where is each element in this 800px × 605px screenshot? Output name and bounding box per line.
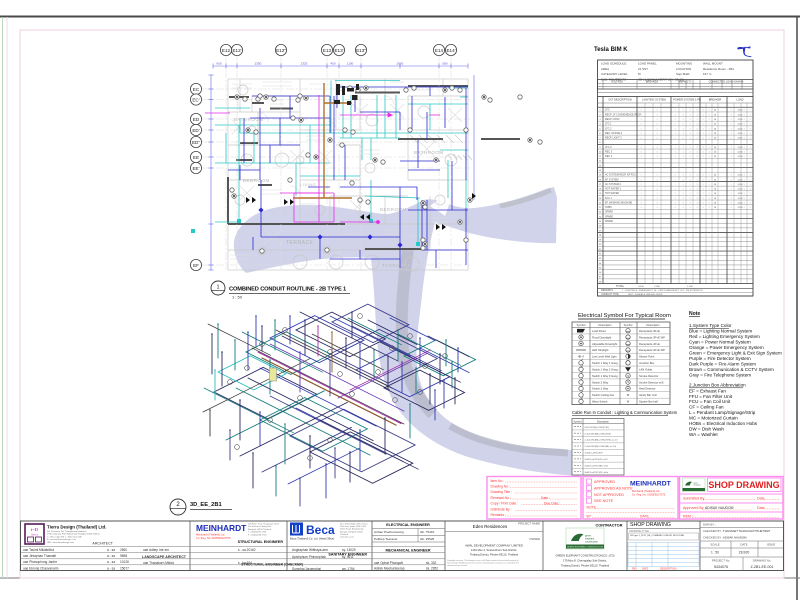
svg-text:Receptacle 2P+E WP: Receptacle 2P+E WP <box>639 348 665 352</box>
svg-text:AMPACITY: AMPACITY <box>678 80 691 84</box>
svg-text:LIVING: LIVING <box>300 182 316 187</box>
svg-text:Apichphum Phiromphak: Apichphum Phiromphak <box>292 555 326 559</box>
svg-text:Beca: Beca <box>306 523 335 537</box>
svg-text:Green = Emergency Light & Exit: Green = Emergency Light & Exit Sign Syst… <box>689 351 782 356</box>
svg-text:Copy / Print Date :: Copy / Print Date : <box>491 502 519 506</box>
svg-text:E12': E12' <box>232 48 241 53</box>
svg-text:Soi Tha-neun Tor, Thungkarang: Soi Tha-neun Tor, Thungkarang Sathorn, <box>47 530 87 533</box>
svg-text:s - sa 20162: s - sa 20162 <box>238 548 256 552</box>
svg-text:2x2.5 SC(W)+2.5SC(T.E7): 2x2.5 SC(W)+2.5SC(T.E7) <box>585 427 610 429</box>
svg-text:1,200: 1,200 <box>737 114 743 116</box>
svg-text:Renewal No :: Renewal No : <box>491 496 511 500</box>
svg-text:Eden Residences: Eden Residences <box>473 524 508 529</box>
svg-text:Smoke Detector w/S: Smoke Detector w/S <box>639 380 664 384</box>
svg-text:WALL MOUNT: WALL MOUNT <box>703 62 723 66</box>
svg-text:1x2x0.5+uPVC,E75: 1x2x0.5+uPVC,E75 <box>585 453 604 455</box>
svg-text:LTG 3: LTG 3 <box>605 146 612 149</box>
svg-text:Co. Reg. No. 0105536127675: Co. Reg. No. 0105536127675 <box>632 493 666 496</box>
svg-text:600: 600 <box>216 62 221 66</box>
svg-text:a - sa: a - sa <box>107 554 115 558</box>
svg-text:108 Floor Tical, Thanpayan Tow: 108 Floor Tical, Thanpayan Tower <box>248 523 280 526</box>
svg-text:Receptacle 2P+E: Receptacle 2P+E <box>639 342 660 346</box>
svg-text:Remarks :: Remarks : <box>491 513 507 517</box>
svg-text:2600: 2600 <box>397 62 404 66</box>
svg-text:PROJECT NAME: PROJECT NAME <box>518 522 540 526</box>
svg-text:LTG 2: LTG 2 <box>605 127 612 130</box>
svg-text:Receptacle 3P+E: Receptacle 3P+E <box>639 329 660 333</box>
svg-text:AC SYSTEM 2: AC SYSTEM 2 <box>605 183 621 186</box>
svg-text:PROJECT No.: PROJECT No. <box>712 559 730 563</box>
svg-text:5434076: 5434076 <box>714 565 728 569</box>
svg-text:ADISAK NAUDOM: ADISAK NAUDOM <box>723 536 747 540</box>
svg-text:SPARE: SPARE <box>605 220 613 223</box>
svg-text:EF: EF <box>193 263 199 268</box>
svg-text:Co. Reg. No. 0105536127675: Co. Reg. No. 0105536127675 <box>196 536 231 540</box>
svg-text:Soi Sukhumvit Bang Rak: Soi Sukhumvit Bang Rak <box>248 525 272 528</box>
svg-text:SHOP DRAWING: SHOP DRAWING <box>630 522 671 528</box>
svg-text:Polthep Teeranet: Polthep Teeranet <box>374 537 397 541</box>
svg-text:CHECKED BY :: CHECKED BY : <box>703 529 723 533</box>
svg-text:uae Phanuphong Janthr: uae Phanuphong Janthr <box>23 560 58 564</box>
svg-text:BREAKER: BREAKER <box>646 80 659 84</box>
svg-text:a - sa: a - sa <box>107 548 115 552</box>
svg-text:1.System Type Color: 1.System Type Color <box>689 323 732 328</box>
svg-text:Silom Road, Bangrakong,: Silom Road, Bangrakong, <box>340 528 364 531</box>
svg-text:DWN BY :: DWN BY : <box>703 523 716 527</box>
svg-text:GREEN ELEPHANT CONSTRUCTION(CO: GREEN ELEPHANT CONSTRUCTION(CO.,LTD) <box>555 554 614 558</box>
svg-text:1,200: 1,200 <box>737 151 743 153</box>
svg-text:APPROVED: APPROVED <box>594 480 615 484</box>
svg-text:t~D: t~D <box>31 527 39 532</box>
svg-text:wy. 1754: wy. 1754 <box>342 567 355 571</box>
svg-text:1,500: 1,500 <box>687 286 693 288</box>
svg-text:14th floor, Room 1401-1403: 14th floor, Room 1401-1403 <box>340 525 367 528</box>
svg-text:THANASET THANACHOTITHETIRAT: THANASET THANACHOTITHETIRAT <box>723 529 771 533</box>
svg-text:No 2 Silom Edge Office Tower: No 2 Silom Edge Office Tower <box>340 523 368 526</box>
svg-text:2325: 2325 <box>301 62 308 66</box>
svg-text:URL: www.tierradesign.com: URL: www.tierradesign.com <box>47 541 74 544</box>
svg-text:Red = Lighting Emergency Syste: Red = Lighting Emergency System <box>689 334 760 339</box>
svg-text:1 : 50: 1 : 50 <box>232 295 243 300</box>
svg-text:Tierra Design (Thailand) Ltd.: Tierra Design (Thailand) Ltd. <box>47 525 106 530</box>
svg-text:Symbol: Symbol <box>577 323 586 327</box>
svg-text:E: aua.tna@tierradesign - Ltd: E: aua.tna@tierradesign - Ltd <box>47 538 76 541</box>
svg-text:LTG: LTG <box>605 109 610 112</box>
svg-text:uae Aditep Intr-em: uae Aditep Intr-em <box>143 548 169 552</box>
svg-text:LOAD: LOAD <box>736 98 743 102</box>
svg-text:elephant: elephant <box>694 484 701 487</box>
svg-text:Dark Purple = Fire Alarm Syste: Dark Purple = Fire Alarm System <box>689 361 756 366</box>
svg-text:Angkaphan Witthaya-arm: Angkaphan Witthaya-arm <box>292 548 328 552</box>
svg-text:LOAD SCHEDULE: LOAD SCHEDULE <box>601 62 626 66</box>
svg-text:TOTAL: TOTAL <box>616 284 625 288</box>
svg-text:CKT DESCRIPTION: CKT DESCRIPTION <box>608 98 632 102</box>
svg-text:ED: ED <box>193 117 200 122</box>
svg-text:REC 4: REC 4 <box>605 155 613 158</box>
svg-text:LIGHTING SYSTEM: LIGHTING SYSTEM <box>642 98 666 102</box>
svg-text:Sqm.BuiR: Sqm.BuiR <box>676 72 690 76</box>
svg-text:HOBS: HOBS <box>605 206 612 209</box>
svg-text:Switch 1 Way 2 Gang: Switch 1 Way 2 Gang <box>592 367 618 371</box>
svg-text:Electrical Symbol For Typical: Electrical Symbol For Typical Room <box>578 313 671 319</box>
svg-text:580: 580 <box>442 62 447 66</box>
svg-text:2560: 2560 <box>120 548 127 552</box>
svg-text:2x4/2.5+uPVC,E15, w1.5: 2x4/2.5+uPVC,E15, w1.5 <box>585 459 609 461</box>
svg-text:Flood Downlight: Flood Downlight <box>592 335 612 339</box>
svg-text:EC': EC' <box>192 97 199 102</box>
svg-text:tierra: tierra <box>31 533 39 537</box>
svg-text:CHECKED BY :: CHECKED BY : <box>703 536 723 540</box>
svg-text:HOBs = Electrical Induction Ho: HOBs = Electrical Induction Hobs <box>689 421 758 426</box>
svg-text:RECP. 1F CONVENIENCE RECP.: RECP. 1F CONVENIENCE RECP. <box>605 113 642 116</box>
svg-text:FCU 1: FCU 1 <box>605 197 613 200</box>
svg-text:POWER SYSTEM 1-PH: POWER SYSTEM 1-PH <box>673 98 701 102</box>
svg-text:DATE: DATE <box>640 515 650 519</box>
svg-text:Square Bar half: Square Bar half <box>639 400 658 404</box>
svg-text:CONTRACTOR: CONTRACTOR <box>596 524 623 528</box>
svg-text:1,200: 1,200 <box>737 110 743 112</box>
svg-text:DATE: DATE <box>740 543 747 547</box>
svg-text:E13": E13" <box>356 48 366 53</box>
svg-text:23/3/20: 23/3/20 <box>739 551 750 555</box>
svg-text:sfk. 25526: sfk. 25526 <box>420 537 435 541</box>
svg-text:Gray = Fire Telephone System: Gray = Fire Telephone System <box>689 372 751 377</box>
svg-text:Orange = Power Emergency Syste: Orange = Power Emergency System <box>689 345 764 350</box>
svg-text:LTG 1: LTG 1 <box>605 123 612 126</box>
svg-text:MEINHARDT: MEINHARDT <box>196 523 247 533</box>
svg-text:LOAD PANEL: LOAD PANEL <box>638 62 657 66</box>
svg-text:commencement of work.: commencement of work. <box>447 564 468 567</box>
svg-text:1,200: 1,200 <box>737 119 743 121</box>
svg-text:1,200: 1,200 <box>737 156 743 158</box>
svg-text:LOCATION: LOCATION <box>676 67 691 71</box>
svg-text:EF = Exhaust Fan: EF = Exhaust Fan <box>689 388 726 393</box>
svg-text:2,330: 2,330 <box>654 286 660 288</box>
svg-text:1,200: 1,200 <box>737 207 743 209</box>
svg-text:E12: E12 <box>222 48 231 53</box>
svg-text:FCU = Fan Coil Unit: FCU = Fan Coil Unit <box>689 399 731 404</box>
svg-text:Description: Description <box>599 323 613 327</box>
svg-text:RECP. CONV.: RECP. CONV. <box>605 118 620 121</box>
svg-text:Beca (Thailand) Co. Ltd. (Head: Beca (Thailand) Co. Ltd. (Head Office) <box>290 537 334 541</box>
svg-text:NOT APPROVED: NOT APPROVED <box>594 493 624 497</box>
svg-text:Note: Note <box>689 311 700 317</box>
svg-text:ED': ED' <box>192 128 199 133</box>
svg-text:Residence Room - 2B1: Residence Room - 2B1 <box>703 67 734 71</box>
svg-text:Cyan = Power Normal System: Cyan = Power Normal System <box>689 340 751 345</box>
svg-text:GREEN ELEPHANT CONSTRUCTION: GREEN ELEPHANT CONSTRUCTION <box>567 546 604 549</box>
svg-text:DESCRIPTION: DESCRIPTION <box>660 568 677 571</box>
svg-text:1,200: 1,200 <box>737 184 743 186</box>
svg-text:Cable Run In Conduit : Lightin: Cable Run In Conduit : Lighting & Commun… <box>572 410 678 415</box>
svg-text:Thalang District, Phuket 83110: Thalang District, Phuket 83110, Thailand <box>470 553 519 557</box>
svg-text:CONNECTED LOAD (VA/KW): CONNECTED LOAD (VA/KW) <box>709 80 744 84</box>
svg-text:Adjustable Downlight: Adjustable Downlight <box>592 342 617 346</box>
svg-text:10126: 10126 <box>120 560 129 564</box>
svg-text:uae Taviml Mikiatrtikul: uae Taviml Mikiatrtikul <box>23 548 54 552</box>
svg-text:DRAWING No.: DRAWING No. <box>753 559 772 563</box>
svg-text:9898: 9898 <box>120 554 127 558</box>
svg-text:Shaver Point: Shaver Point <box>639 355 655 359</box>
svg-text:27/32 Jalan-Dr.Path Pakanong T: 27/32 Jalan-Dr.Path Pakanong Thungkat 10… <box>47 533 100 536</box>
svg-text:T: +66(0)2236-7733: T: +66(0)2236-7733 <box>248 532 267 534</box>
svg-text:MC = Motorized Curtain: MC = Motorized Curtain <box>689 416 738 421</box>
svg-text:uae Thanakorn Mikiat: uae Thanakorn Mikiat <box>143 561 174 565</box>
svg-text:ISSUE: ISSUE <box>767 543 776 547</box>
svg-text:a - sa: a - sa <box>107 560 115 564</box>
svg-text:STRUCTURAL ENGINEER: STRUCTURAL ENGINEER <box>238 540 284 544</box>
svg-text:construction: construction <box>585 541 599 544</box>
svg-text:E14: E14 <box>435 48 444 53</box>
svg-text:DATE: DATE <box>642 568 649 571</box>
svg-text:2+2x2.5SC(W)+2.5SC(SE, w+1.5): 2+2x2.5SC(W)+2.5SC(SE, w+1.5) <box>585 446 617 448</box>
svg-text:AREA: AREA <box>601 67 609 71</box>
svg-text:SHOP DRAWING: SHOP DRAWING <box>708 480 779 490</box>
svg-text:2+2x2.5SC(W)+2.5SC(T.E5): 2+2x2.5SC(W)+2.5SC(T.E5) <box>585 433 612 435</box>
svg-text:CONDUIT TYPE: CONDUIT TYPE <box>601 293 619 296</box>
svg-text:Switch 2 Way: Switch 2 Way <box>592 387 609 391</box>
svg-text:ED": ED" <box>192 140 200 145</box>
svg-text:15677: 15677 <box>120 566 129 570</box>
svg-text:Bangkok 10500 Thailand: Bangkok 10500 Thailand <box>248 529 272 531</box>
svg-text:SEE NOTE: SEE NOTE <box>594 499 614 503</box>
svg-text:sk. 332: sk. 332 <box>426 561 437 565</box>
svg-text:Description: Description <box>597 420 610 423</box>
svg-text:SCALE: SCALE <box>710 543 719 547</box>
svg-text:RECP. LIGHT 2: RECP. LIGHT 2 <box>605 137 622 140</box>
svg-text:Due Date :: Due Date : <box>544 502 560 506</box>
svg-text:1,200: 1,200 <box>737 124 743 126</box>
svg-text:1,200: 1,200 <box>737 193 743 195</box>
svg-text:BREAKER: BREAKER <box>709 98 722 102</box>
svg-text:HOT WATER 1: HOT WATER 1 <box>605 188 622 191</box>
svg-text:2B Type 1_21ST_EE_COMBINE COND: 2B Type 1_21ST_EE_COMBINE CONDUIT ROUTLI… <box>630 535 685 537</box>
svg-text:Item No :: Item No : <box>491 479 505 483</box>
svg-text:VOLTAGE: VOLTAGE <box>611 80 623 84</box>
svg-text:APPROVED AS NOTE: APPROVED AS NOTE <box>594 486 633 490</box>
svg-text:DW = Dish Wash: DW = Dish Wash <box>689 426 724 431</box>
svg-text:sfk. 75410: sfk. 75410 <box>420 530 435 534</box>
svg-text:Meinhardt (Thailand) Ltd.: Meinhardt (Thailand) Ltd. <box>196 533 225 537</box>
svg-text:Switch Ceiling Fan: Switch Ceiling Fan <box>592 393 615 397</box>
svg-text:⊕⊣: ⊕⊣ <box>578 355 584 359</box>
svg-text:3D_EE_2B1: 3D_EE_2B1 <box>190 502 222 508</box>
svg-text:Purple = Fire Detector System: Purple = Fire Detector System <box>689 356 751 361</box>
svg-text:1,200: 1,200 <box>737 189 743 191</box>
svg-text:Receptacle 3P+E WP: Receptacle 3P+E WP <box>639 335 665 339</box>
svg-text:L = Pendant Lamp/Signage/Strip: L = Pendant Lamp/Signage/Strip <box>689 410 756 415</box>
svg-text:2+2x2.5SC(W)+2.5SC(T.E5), w+1.: 2+2x2.5SC(W)+2.5SC(T.E5), w+1.5 <box>585 440 619 442</box>
svg-text:uae Jintaphan Thanakit: uae Jintaphan Thanakit <box>23 554 56 558</box>
svg-text:AWAL DEVELOPMENT COMPANY LIMIT: AWAL DEVELOPMENT COMPANY LIMITED <box>465 544 523 548</box>
svg-text:LAN Outlet: LAN Outlet <box>639 367 652 371</box>
svg-text:BEDROOM: BEDROOM <box>243 178 270 183</box>
svg-text:ADISAK NAUDOM: ADISAK NAUDOM <box>705 506 734 510</box>
svg-text:TERRACE: TERRACE <box>286 240 314 246</box>
svg-text:Somchai Jaroenchai: Somchai Jaroenchai <box>292 567 321 571</box>
svg-text:Smoke Detector: Smoke Detector <box>639 374 658 378</box>
svg-text:Low Level Wall Light: Low Level Wall Light <box>592 355 617 359</box>
svg-text:Switch 1 Way 1 Gang: Switch 1 Way 1 Gang <box>592 361 618 365</box>
svg-text:www.beca.com: www.beca.com <box>340 537 354 539</box>
svg-text:Symbol: Symbol <box>624 323 633 327</box>
svg-text:E13': E13' <box>334 48 343 53</box>
svg-text:MECHANICAL ENGINEER: MECHANICAL ENGINEER <box>385 549 430 553</box>
svg-text:COMBINED CONDUIT ROUTLINE - 2B: COMBINED CONDUIT ROUTLINE - 2B TYPE 1 <box>229 287 346 293</box>
svg-text:1 : 50: 1 : 50 <box>711 551 719 555</box>
svg-text:EF. WASHING MACHINE: EF. WASHING MACHINE <box>605 201 633 204</box>
svg-text:Blue = Lighting Normal System: Blue = Lighting Normal System <box>689 329 752 334</box>
svg-text:REC. OFFICE 2: REC. OFFICE 2 <box>605 132 623 135</box>
svg-text:1100: 1100 <box>347 62 354 66</box>
svg-text:HOT WATER: HOT WATER <box>605 192 619 195</box>
svg-text:BY: BY <box>587 515 592 519</box>
svg-text:TERRACE: TERRACE <box>382 263 407 268</box>
svg-text:1,200: 1,200 <box>737 175 743 177</box>
svg-text:Date: Date <box>757 497 765 501</box>
svg-text:EE: EE <box>193 155 199 160</box>
svg-text:EC: EC <box>193 87 200 92</box>
svg-text:2.Junction Box Abbreviation: 2.Junction Box Abbreviation <box>689 383 746 388</box>
svg-text:UNIT : SURFACE LINE BILL BUSS: UNIT : SURFACE LINE BILL BUSS <box>628 293 663 296</box>
svg-text:CF = Ceiling Fan: CF = Ceiling Fan <box>689 405 724 410</box>
svg-text:L : LIGHTING E : EMERGENCY: L : LIGHTING E : EMERGENCY GL : FIRST EM… <box>622 290 703 292</box>
svg-text:WA = Washlet: WA = Washlet <box>689 432 718 437</box>
svg-text:MEINHARDT: MEINHARDT <box>630 481 672 488</box>
svg-text:Description: Description <box>647 323 661 327</box>
svg-text:1,200: 1,200 <box>737 138 743 140</box>
svg-text:S: S <box>627 374 629 378</box>
svg-text:2x4/2.5+uPVC,SE5, w/2x: 2x4/2.5+uPVC,SE5, w/2x <box>585 465 609 467</box>
svg-text:EF SYSTEM: EF SYSTEM <box>605 178 619 181</box>
svg-text:21 SST: 21 SST <box>638 67 648 71</box>
svg-text:Load Panel: Load Panel <box>592 329 606 333</box>
svg-text:EE': EE' <box>192 166 199 171</box>
svg-text:LANDSCAPE ARCHITECT: LANDSCAPE ARCHITECT <box>142 555 187 559</box>
svg-text:167 m: 167 m <box>703 72 712 76</box>
svg-text:4,100: 4,100 <box>638 286 644 288</box>
svg-text:1,200: 1,200 <box>737 133 743 135</box>
svg-text:Switch 1 Way 3 Gang: Switch 1 Way 3 Gang <box>592 374 618 378</box>
svg-text:MOUNTING: MOUNTING <box>676 62 693 66</box>
svg-text:Junction Box: Junction Box <box>639 361 655 365</box>
svg-text:1: 1 <box>216 285 219 291</box>
svg-text:1491 Moo 4, Srisoonthorn Sub-D: 1491 Moo 4, Srisoonthorn Sub-District, <box>471 548 518 552</box>
svg-text:LED Striplight: LED Striplight <box>592 348 609 352</box>
svg-text:REMARKS: REMARKS <box>601 289 613 292</box>
svg-text:Drawing Title :: Drawing Title : <box>491 490 513 494</box>
svg-text:REM :: REM : <box>683 515 693 519</box>
svg-text:Vanity Bar Unit: Vanity Bar Unit <box>639 393 657 397</box>
svg-text:S: S <box>627 380 629 384</box>
svg-text:SPARE: SPARE <box>605 211 613 214</box>
svg-text:2350: 2350 <box>255 62 262 66</box>
svg-text:Distribute By :: Distribute By : <box>491 508 512 512</box>
svg-text:AC SYSTEM RECP. EF FCU: AC SYSTEM RECP. EF FCU <box>605 174 636 177</box>
svg-text:uae Ekrong Chaovanarm: uae Ekrong Chaovanarm <box>23 566 59 570</box>
svg-text:1,200: 1,200 <box>737 202 743 204</box>
svg-text:179 Moo 8, Cherngtalay Sub-Di: 179 Moo 8, Cherngtalay Sub-District, <box>563 559 607 563</box>
svg-text:E14': E14' <box>446 48 455 53</box>
svg-text:Thalang District, Phuket 83110: Thalang District, Phuket 83110, Thailand <box>561 564 610 568</box>
svg-text:NOTE: NOTE <box>587 506 597 510</box>
svg-text:2x4/2.5+uPVC,S2C, w/2x: 2x4/2.5+uPVC,S2C, w/2x <box>585 472 609 474</box>
svg-text:1,200: 1,200 <box>737 147 743 149</box>
svg-text:F: +66(0)2236-7740: F: +66(0)2236-7740 <box>248 534 267 536</box>
svg-text:ARCHITECT: ARCHITECT <box>92 542 113 546</box>
svg-text:SPARE: SPARE <box>605 215 613 218</box>
svg-text:FFU = Fan Filter Unit: FFU = Fan Filter Unit <box>689 394 733 399</box>
svg-text:1,200: 1,200 <box>737 128 743 130</box>
svg-text:Brown = Communication & CCTV S: Brown = Communication & CCTV System <box>689 367 774 372</box>
svg-text:sk. 2952: sk. 2952 <box>426 567 438 571</box>
svg-text:Arthan Prachumwong: Arthan Prachumwong <box>374 530 404 534</box>
svg-text:1,200: 1,200 <box>737 179 743 181</box>
svg-text:Switch 2 Way: Switch 2 Way <box>592 380 609 384</box>
svg-text:Date: Date <box>757 506 765 510</box>
svg-text:C - Mca Chat 200 1 - Wavi mch: C - Mca Chat 200 1 - Wavi mch afth <box>47 535 82 538</box>
svg-text:Adirek Meebunteerap: Adirek Meebunteerap <box>374 567 405 571</box>
svg-text:ELECTRICAL ENGINEER: ELECTRICAL ENGINEER <box>386 523 430 527</box>
svg-text:BEDROOM: BEDROOM <box>380 207 407 212</box>
svg-text:1,200: 1,200 <box>737 198 743 200</box>
svg-text:CATEGORY LEVEL: CATEGORY LEVEL <box>601 72 628 76</box>
svg-text:SANITARY ENGINEER: SANITARY ENGINEER <box>328 553 367 557</box>
svg-text:REC 3: REC 3 <box>605 150 613 153</box>
svg-text:Date :: Date : <box>541 496 550 500</box>
svg-text:Approved By :: Approved By : <box>683 506 706 510</box>
svg-text:Wava Switch: Wava Switch <box>592 400 608 404</box>
svg-text:uae Ophat Phongwit: uae Ophat Phongwit <box>374 561 403 565</box>
svg-text:Submitted By: Submitted By <box>683 497 705 501</box>
svg-text:DRAWING TITLE: DRAWING TITLE <box>630 530 650 533</box>
svg-text:sy. 13029: sy. 13029 <box>342 548 356 552</box>
svg-text:Heat Detector: Heat Detector <box>639 387 656 391</box>
svg-text:Symbol: Symbol <box>574 420 582 423</box>
svg-text:Z-2B1-EE-001: Z-2B1-EE-001 <box>751 565 774 569</box>
svg-text:E13: E13 <box>323 48 332 53</box>
svg-text:450: 450 <box>330 62 335 66</box>
svg-text:E12": E12" <box>276 48 286 53</box>
svg-text:Tesla BIM K: Tesla BIM K <box>594 47 628 53</box>
svg-text:Drawing No :: Drawing No : <box>491 485 511 489</box>
svg-text:a - sa: a - sa <box>107 566 115 570</box>
svg-text:REV: REV <box>632 568 637 571</box>
svg-text:OWNER: OWNER <box>529 537 540 541</box>
